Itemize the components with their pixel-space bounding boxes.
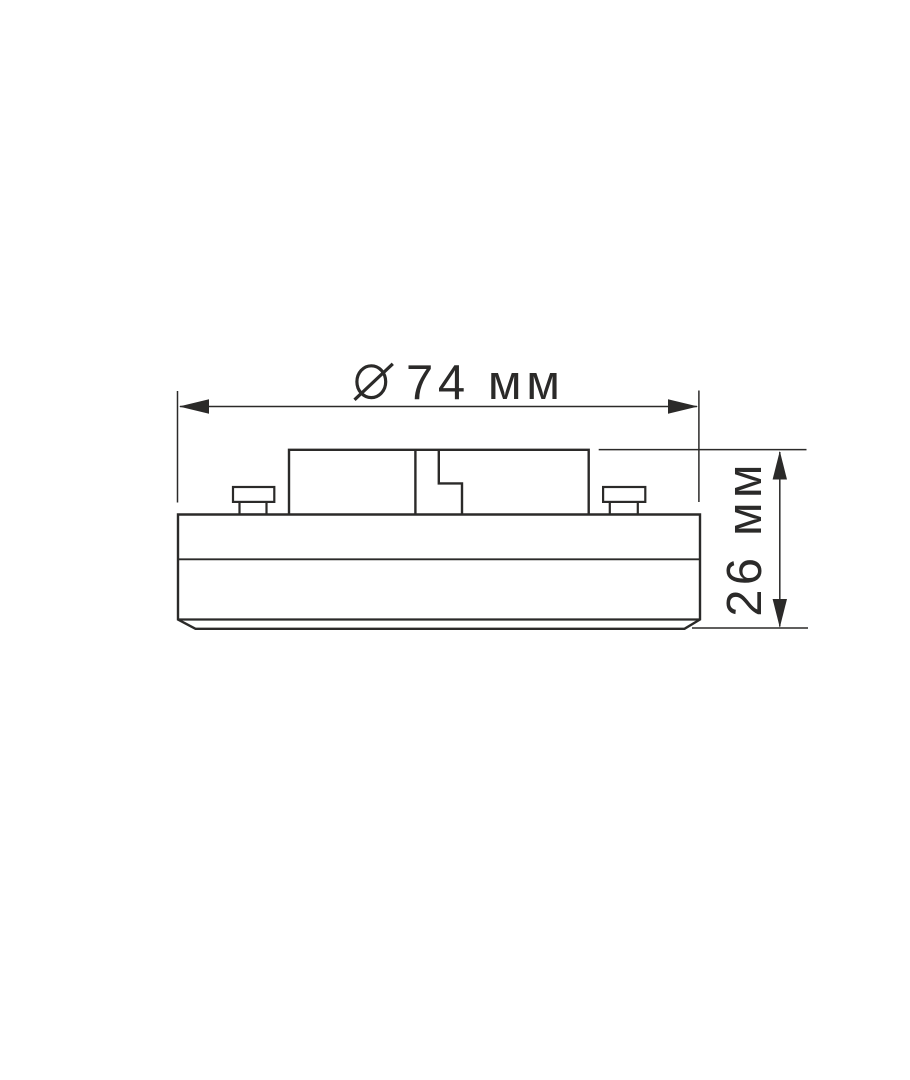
svg-text:74 мм: 74 мм: [406, 356, 565, 410]
svg-text:26 мм: 26 мм: [718, 460, 772, 617]
